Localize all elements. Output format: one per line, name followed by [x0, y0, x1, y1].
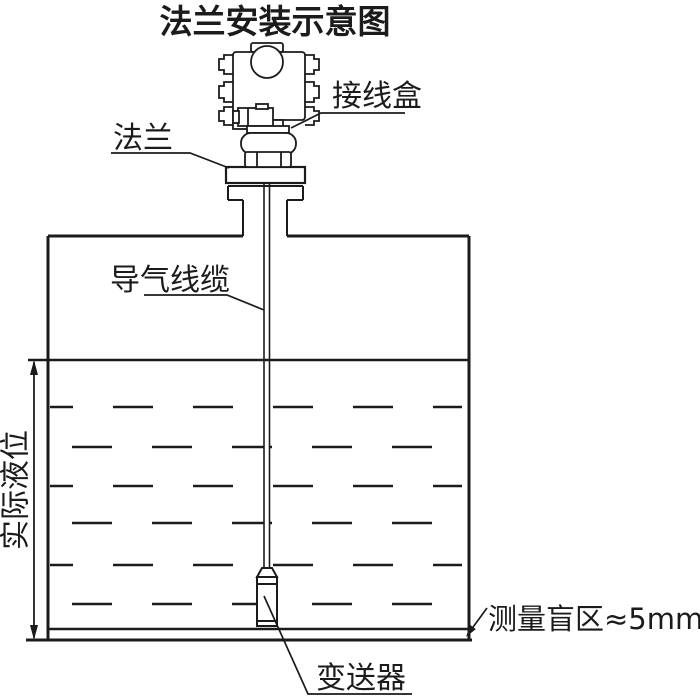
actual-level-label: 实际液位	[0, 430, 34, 550]
dimension-arrow-down	[30, 625, 38, 640]
terminal-block	[233, 104, 273, 126]
air-guide-cable	[264, 183, 270, 571]
tank-outline	[26, 236, 472, 640]
flange-installation-diagram: 法兰安装示意图 接线盒 法兰 导气线缆 实际液位 变送器 测量盲区≈5mm	[0, 0, 700, 700]
blind-zone-label: 测量盲区≈5mm	[488, 602, 700, 636]
liquid-dashes	[50, 407, 462, 604]
transmitter-label: 变送器	[316, 661, 406, 696]
hex-nut	[245, 152, 291, 167]
transmitter-head-drawing	[219, 43, 319, 167]
swivel-joint	[241, 126, 296, 154]
flange-label: 法兰	[113, 121, 173, 156]
junction-box-label: 接线盒	[332, 79, 422, 114]
housing-cap	[251, 46, 283, 78]
dimension-arrow-up	[30, 360, 38, 375]
diagram-canvas: 法兰安装示意图 接线盒 法兰 导气线缆 实际液位 变送器 测量盲区≈5mm	[0, 0, 700, 700]
flange-plate	[226, 167, 305, 183]
diagram-title: 法兰安装示意图	[160, 2, 391, 41]
air-cable-label: 导气线缆	[110, 263, 230, 298]
